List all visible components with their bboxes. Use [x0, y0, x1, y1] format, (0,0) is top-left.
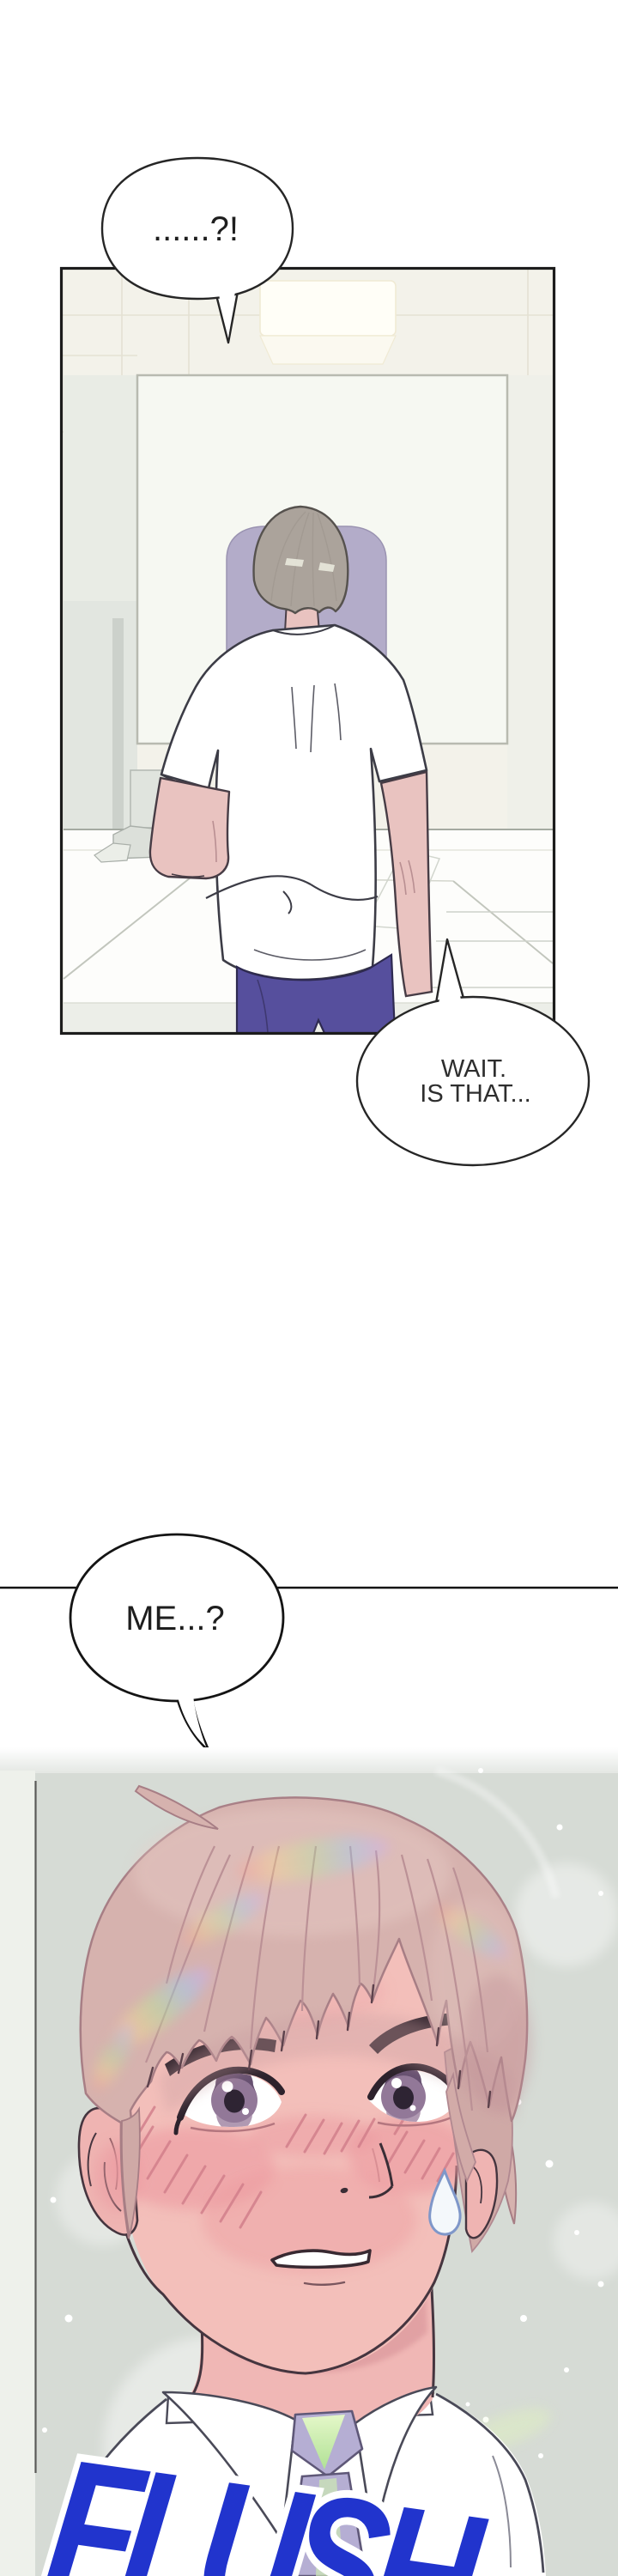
svg-text:IS THAT...: IS THAT... — [420, 1080, 530, 1108]
svg-text:WAIT.: WAIT. — [441, 1055, 506, 1083]
svg-text:ME...?: ME...? — [125, 1600, 225, 1637]
svg-text:......?!: ......?! — [153, 210, 239, 248]
